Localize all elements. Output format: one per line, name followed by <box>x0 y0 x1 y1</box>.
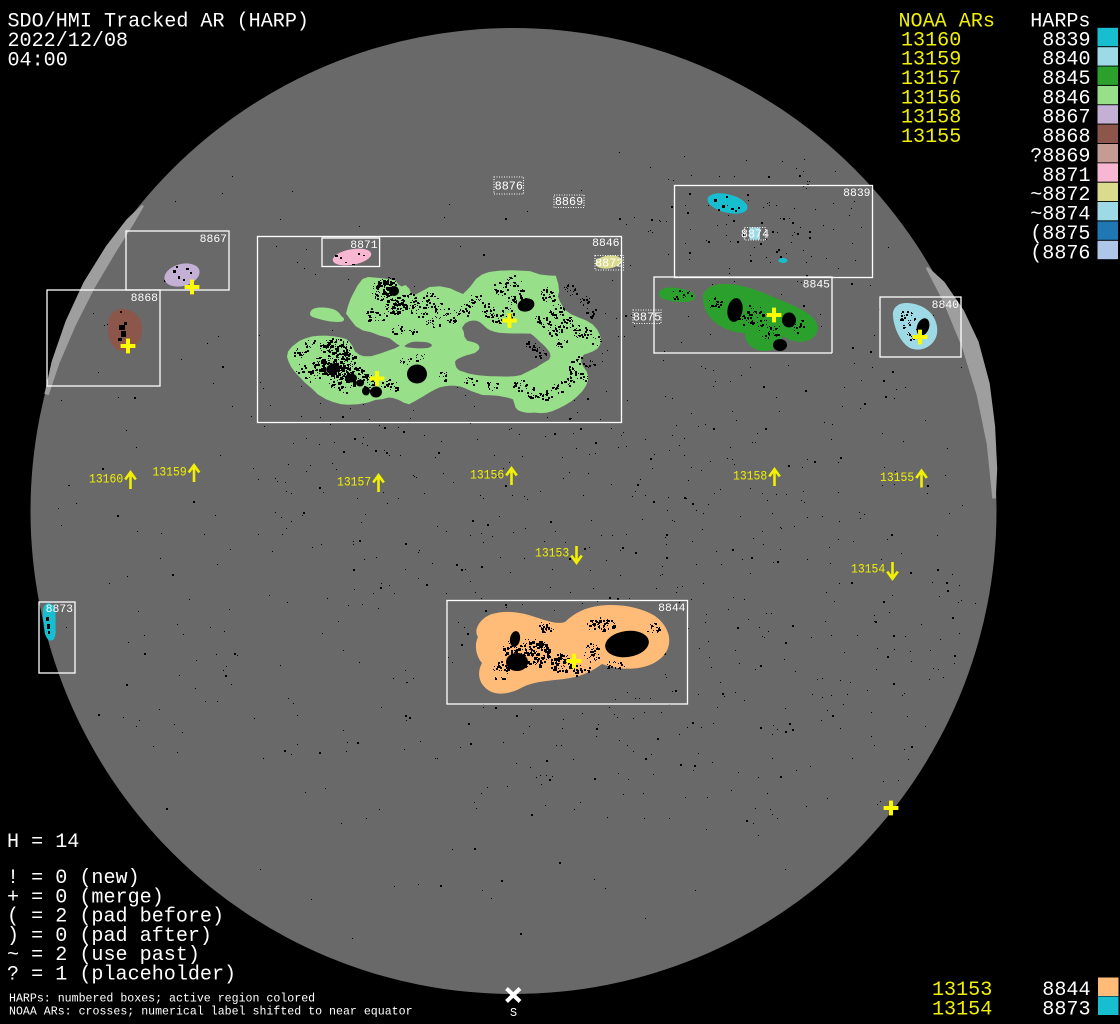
svg-text:13153: 13153 <box>535 546 569 561</box>
svg-text:8869: 8869 <box>555 195 583 209</box>
svg-text:NOAA ARs: crosses; numerical l: NOAA ARs: crosses; numerical label shift… <box>9 1006 413 1019</box>
svg-text:8875: 8875 <box>633 311 661 325</box>
svg-text:? = 1 (placeholder): ? = 1 (placeholder) <box>7 964 236 987</box>
svg-text:8872: 8872 <box>595 257 623 271</box>
svg-text:8876: 8876 <box>495 179 523 193</box>
svg-text:04:00: 04:00 <box>8 50 68 73</box>
svg-text:8840: 8840 <box>932 300 960 312</box>
svg-text:13158: 13158 <box>733 469 767 484</box>
svg-text:8873: 8873 <box>46 604 74 616</box>
svg-text:13159: 13159 <box>153 465 187 480</box>
svg-text:8846: 8846 <box>592 238 620 250</box>
svg-text:13155: 13155 <box>901 126 961 149</box>
svg-text:H = 14: H = 14 <box>7 831 79 854</box>
svg-text:8845: 8845 <box>803 280 831 292</box>
svg-text:8844: 8844 <box>658 603 686 615</box>
svg-text:8839: 8839 <box>843 188 871 200</box>
svg-text:13156: 13156 <box>470 468 504 483</box>
svg-text:13155: 13155 <box>880 470 914 485</box>
svg-text:13157: 13157 <box>337 475 371 490</box>
svg-text:HARPs: numbered boxes; active: HARPs: numbered boxes; active region col… <box>9 993 315 1006</box>
svg-text:8867: 8867 <box>200 234 227 246</box>
svg-text:13154: 13154 <box>932 998 992 1021</box>
svg-text:8868: 8868 <box>131 293 159 305</box>
svg-text:13160: 13160 <box>89 472 123 487</box>
svg-text:8873: 8873 <box>1042 998 1090 1021</box>
svg-text:(8876: (8876 <box>1030 242 1090 265</box>
svg-text:S: S <box>510 1006 517 1020</box>
svg-text:8874: 8874 <box>741 228 769 242</box>
svg-text:13154: 13154 <box>851 562 885 577</box>
